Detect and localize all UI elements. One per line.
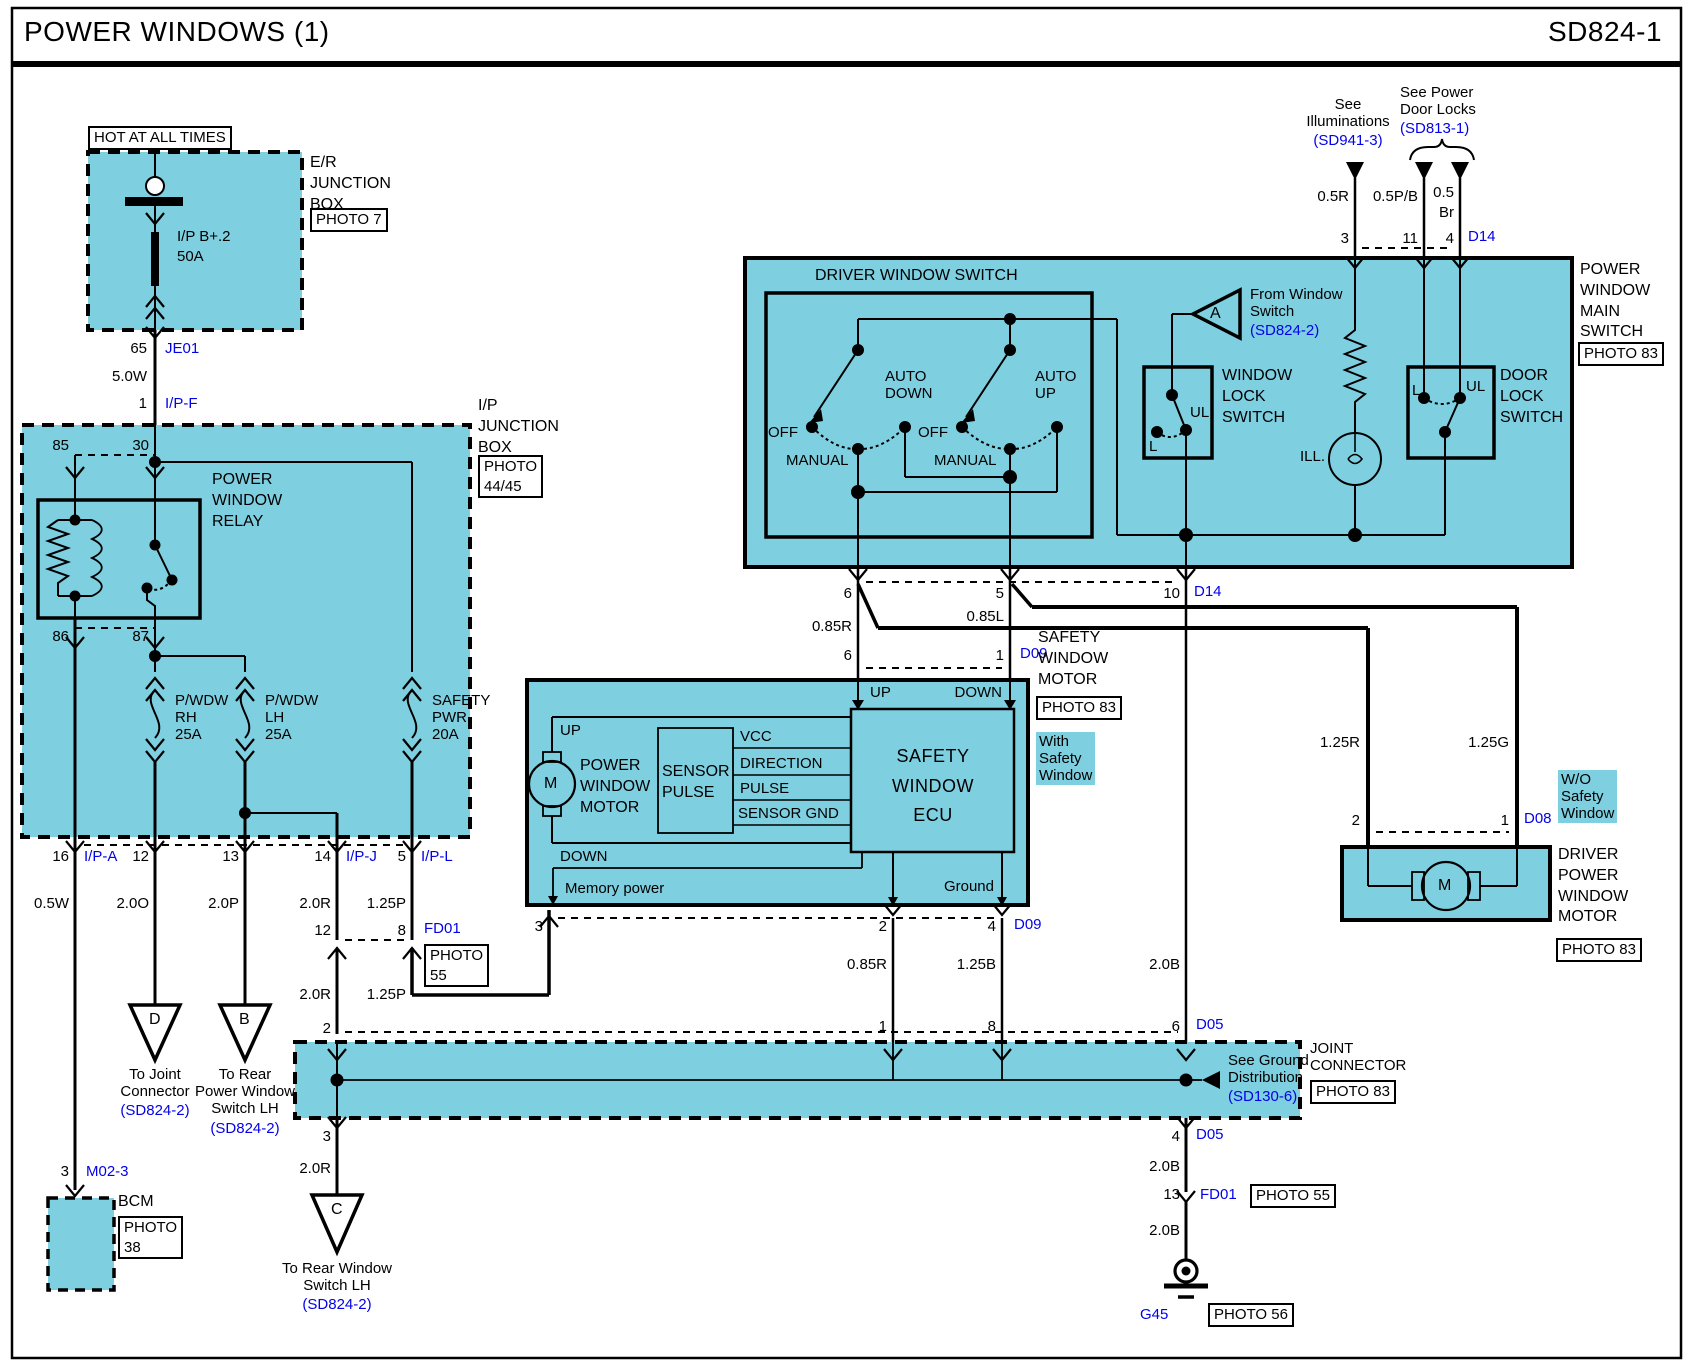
connector-d14-top: D14 [1468, 228, 1496, 245]
relay-pin-87: 87 [132, 628, 149, 645]
wire-0-85r: 0.85R [812, 618, 852, 635]
up-pin-label: UP [870, 684, 891, 701]
wire-0-5pb: 0.5P/B [1373, 188, 1418, 205]
motor-m-symbol: M [544, 774, 557, 795]
joint-exit-pin-3: 3 [323, 1128, 331, 1145]
d05-pin-4: 4 [1172, 1128, 1180, 1145]
safety-window-ecu-label: SAFETY WINDOW ECU [892, 742, 974, 831]
ground-g45-label: G45 [1140, 1306, 1168, 1323]
d09-pin-1: 1 [996, 647, 1004, 664]
fd01-pin-12: 12 [314, 922, 331, 939]
wire-0-85l: 0.85L [966, 608, 1004, 625]
pin-14: 14 [314, 848, 331, 865]
fd01-lower-photo-ref: PHOTO 55 [1250, 1184, 1336, 1208]
d09-pin-2: 2 [879, 918, 887, 935]
vcc-label: VCC [740, 728, 772, 745]
off-label-left: OFF [768, 424, 798, 441]
wire-1-25p: 1.25P [367, 895, 406, 912]
bcm-photo-ref: PHOTO 38 [118, 1216, 183, 1259]
safety-motor-photo-ref: PHOTO 83 [1036, 696, 1122, 720]
wire-2-0b-upper: 2.0B [1149, 1158, 1180, 1175]
driver-motor-m-symbol: M [1438, 876, 1451, 897]
motor-up-label: UP [560, 722, 581, 739]
pin-65: 65 [130, 340, 147, 357]
pin-16: 16 [52, 848, 69, 865]
see-illuminations-text: See Illuminations [1306, 96, 1389, 130]
manual-label-left: MANUAL [786, 452, 849, 469]
wire-0-5w: 0.5W [34, 895, 69, 912]
dl-l-label: L [1412, 382, 1420, 399]
hot-at-all-times-label: HOT AT ALL TIMES [88, 126, 232, 150]
fd01-photo-ref: PHOTO 55 [424, 944, 489, 987]
joint-connector-label: JOINT CONNECTOR [1310, 1040, 1406, 1074]
d08-pin-1: 1 [1501, 812, 1509, 829]
wl-ul-label: UL [1190, 404, 1209, 421]
pin-13: 13 [222, 848, 239, 865]
connector-m02-3: M02-3 [86, 1163, 129, 1180]
connector-ipl: I/P-L [421, 848, 453, 865]
d05-pin-6: 6 [1172, 1018, 1180, 1035]
connector-fd01-lower: FD01 [1200, 1186, 1237, 1203]
d09-pin-4: 4 [988, 918, 996, 935]
wire-1-25p-lower: 1.25P [367, 986, 406, 1003]
triangle-d-ref[interactable]: (SD824-2) [120, 1102, 189, 1119]
connector-ipj: I/P-J [346, 848, 377, 865]
wire-2-0b-main: 2.0B [1149, 956, 1180, 973]
relay-pin-30: 30 [132, 437, 149, 454]
power-window-motor-label: POWER WINDOW MOTOR [580, 756, 650, 818]
motor-down-label: DOWN [560, 848, 608, 865]
d05-pin-8: 8 [988, 1018, 996, 1035]
fd01-pin-8: 8 [398, 922, 406, 939]
wire-1-25g: 1.25G [1468, 734, 1509, 751]
sensor-pulse-label: SENSOR PULSE [662, 762, 730, 804]
ground-photo-ref: PHOTO 56 [1208, 1303, 1294, 1327]
auto-up-label: AUTO UP [1035, 368, 1076, 402]
down-pin-label: DOWN [955, 684, 1003, 701]
pin-5: 5 [398, 848, 406, 865]
see-ground-distribution-text: See Ground Distribution [1228, 1052, 1309, 1086]
wire-2-0r-lower: 2.0R [299, 986, 331, 1003]
fuse-name-label: I/P B+.2 [177, 228, 231, 245]
ip-photo-ref: PHOTO 44/45 [478, 455, 543, 498]
connector-d05-top: D05 [1196, 1016, 1224, 1033]
triangle-d-letter: D [149, 1010, 161, 1031]
joint-pin-2: 2 [323, 1020, 331, 1037]
driver-window-switch-title: DRIVER WINDOW SWITCH [815, 266, 1018, 287]
triangle-d-text: To Joint Connector [120, 1066, 189, 1100]
connector-fd01: FD01 [424, 920, 461, 937]
sensor-gnd-label: SENSOR GND [738, 805, 839, 822]
manual-label-right: MANUAL [934, 452, 997, 469]
pin-12: 12 [132, 848, 149, 865]
pin-1: 1 [139, 395, 147, 412]
wl-l-label: L [1149, 438, 1157, 455]
pulse-label: PULSE [740, 780, 789, 797]
d05-pin-1: 1 [879, 1018, 887, 1035]
connector-d14-bottom: D14 [1194, 583, 1222, 600]
triangle-c-ref[interactable]: (SD824-2) [302, 1296, 371, 1313]
direction-label: DIRECTION [740, 755, 823, 772]
triangle-b-letter: B [239, 1010, 250, 1031]
wo-safety-window-note: W/O Safety Window [1558, 770, 1617, 823]
safety-window-motor-label: SAFETY WINDOW MOTOR [1038, 628, 1108, 690]
wire-5-0w: 5.0W [112, 368, 147, 385]
auto-down-label: AUTO DOWN [885, 368, 933, 402]
with-safety-window-note: With Safety Window [1036, 732, 1095, 785]
ground-label: Ground [944, 878, 994, 895]
triangle-b-text: To Rear Power Window Switch LH [195, 1066, 295, 1117]
page-title: POWER WINDOWS (1) [24, 16, 330, 48]
connector-d09-bottom: D09 [1014, 916, 1042, 933]
fuse-safety-pwr-label: SAFETY PWR 20A [432, 692, 490, 743]
wire-0-5: 0.5 [1433, 184, 1454, 201]
wire-2-0r-c: 2.0R [299, 1160, 331, 1177]
main-switch-photo-ref: PHOTO 83 [1578, 342, 1664, 366]
wire-2-0b-lower: 2.0B [1149, 1222, 1180, 1239]
off-label-right: OFF [918, 424, 948, 441]
connector-ipf: I/P-F [165, 395, 198, 412]
bcm-label: BCM [118, 1192, 154, 1213]
memory-power-label: Memory power [565, 880, 664, 897]
ill-label: ILL. [1300, 448, 1325, 465]
wire-br: Br [1439, 204, 1454, 221]
d09-pin-3: 3 [535, 918, 543, 935]
er-photo-ref: PHOTO 7 [310, 208, 388, 232]
connector-d05-bottom: D05 [1196, 1126, 1224, 1143]
joint-connector-photo-ref: PHOTO 83 [1310, 1080, 1396, 1104]
from-window-switch-ref[interactable]: (SD824-2) [1250, 322, 1319, 339]
d14-pin-4: 4 [1446, 230, 1454, 247]
fuse-rating-label: 50A [177, 248, 204, 265]
ground-run [1164, 1118, 1208, 1297]
wire-2-0r: 2.0R [299, 895, 331, 912]
door-lock-switch-label: DOOR LOCK SWITCH [1500, 366, 1563, 428]
power-window-relay-label: POWER WINDOW RELAY [212, 470, 282, 532]
d14-pin-6: 6 [844, 585, 852, 602]
fuse-pwdw-rh-label: P/WDW RH 25A [175, 692, 228, 743]
see-illuminations-ref[interactable]: (SD941-3) [1313, 132, 1382, 149]
power-window-main-switch-label: POWER WINDOW MAIN SWITCH [1580, 260, 1650, 343]
triangle-c-text: To Rear Window Switch LH [282, 1260, 392, 1294]
wire-2-0o: 2.0O [116, 895, 149, 912]
connector-ipa: I/P-A [84, 848, 117, 865]
d14-pin-11: 11 [1402, 230, 1418, 247]
ip-junction-box-label: I/P JUNCTION BOX [478, 396, 559, 458]
wire-0-5r: 0.5R [1317, 188, 1349, 205]
d09-pin-6: 6 [844, 647, 852, 664]
triangle-a-letter: A [1210, 304, 1221, 325]
wire-1-25b: 1.25B [957, 956, 996, 973]
connector-je01: JE01 [165, 340, 199, 357]
wire-2-0p: 2.0P [208, 895, 239, 912]
joint-connector-box [295, 1032, 1300, 1128]
d14-pin-10: 10 [1163, 585, 1180, 602]
d14-pin-5: 5 [996, 585, 1004, 602]
wire-1-25r: 1.25R [1320, 734, 1360, 751]
er-junction-box-label: E/R JUNCTION BOX [310, 153, 391, 215]
from-window-switch-text: From Window Switch [1250, 286, 1343, 320]
fuse-pwdw-lh-label: P/WDW LH 25A [265, 692, 318, 743]
bcm-pin-3: 3 [61, 1163, 69, 1180]
driver-motor-photo-ref: PHOTO 83 [1556, 938, 1642, 962]
window-lock-switch-label: WINDOW LOCK SWITCH [1222, 366, 1292, 428]
wiring-diagram-page: POWER WINDOWS (1) SD824-1 HOT AT ALL TIM… [0, 0, 1693, 1371]
see-power-door-locks-text: See Power Door Locks [1400, 84, 1476, 118]
connector-d08: D08 [1524, 810, 1552, 827]
d08-pin-2: 2 [1352, 812, 1360, 829]
page-code: SD824-1 [1548, 16, 1662, 48]
driver-power-window-motor-label: DRIVER POWER WINDOW MOTOR [1558, 845, 1628, 928]
see-power-door-locks-ref[interactable]: (SD813-1) [1400, 120, 1469, 137]
dl-ul-label: UL [1466, 378, 1485, 395]
triangle-b-ref[interactable]: (SD824-2) [210, 1120, 279, 1137]
relay-pin-86: 86 [52, 628, 69, 645]
relay-pin-85: 85 [52, 437, 69, 454]
see-ground-distribution-ref[interactable]: (SD130-6) [1228, 1088, 1297, 1105]
fd01-pin-13: 13 [1163, 1186, 1180, 1203]
wire-0-85r-lower: 0.85R [847, 956, 887, 973]
d14-pin-3: 3 [1341, 230, 1349, 247]
triangle-c-letter: C [331, 1200, 343, 1221]
